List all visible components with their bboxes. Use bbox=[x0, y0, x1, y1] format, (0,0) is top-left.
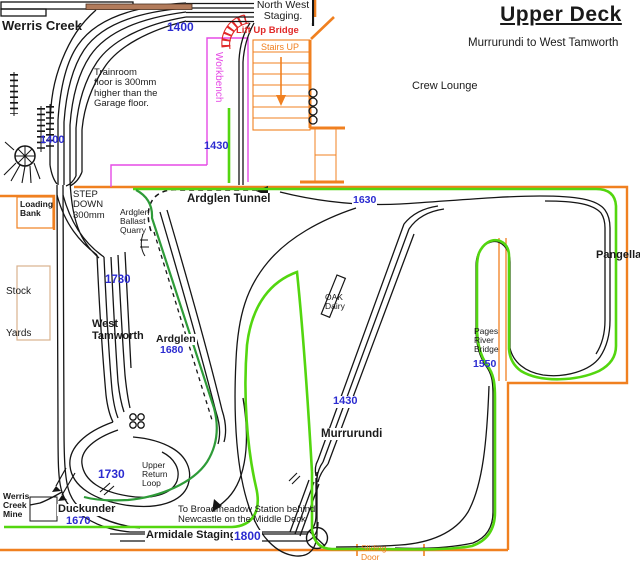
wall-stairs-diagonal bbox=[311, 0, 334, 39]
murrurundi-label: Murrurundi bbox=[320, 428, 383, 440]
pangella-descent-track bbox=[336, 386, 489, 547]
ardglen-loop-tracks bbox=[160, 210, 226, 444]
west-tamworth-label: West Tamworth bbox=[92, 319, 144, 343]
loading-bank-label: Loading Bank bbox=[20, 200, 53, 218]
mainline-1630-pangella bbox=[280, 192, 610, 548]
duckunder-arrow-head-1 bbox=[52, 486, 61, 492]
elevation-1430-murrurundi: 1430 bbox=[332, 396, 358, 408]
turntable-spokes bbox=[15, 146, 35, 166]
elevation-1730-loop: 1730 bbox=[97, 468, 126, 481]
roundhouse-tracks bbox=[4, 142, 40, 183]
ardglen-quarry-label: Ardglen Ballast Quarry bbox=[120, 208, 149, 236]
loop-dot-3 bbox=[130, 422, 136, 428]
upper-return-loop-label: Upper Return Loop bbox=[141, 461, 169, 489]
upper-deck-trackplan: Upper Deck Murrurundi to West Tamworth C… bbox=[0, 0, 640, 563]
fan-merge bbox=[50, 165, 82, 186]
trackwork bbox=[1, 0, 610, 556]
stairs-lower-landing bbox=[315, 128, 336, 181]
crew-lounge-label: Crew Lounge bbox=[412, 81, 477, 93]
duckunder-arrow-head-2 bbox=[58, 495, 67, 501]
upper-return-loop-outer bbox=[70, 422, 190, 506]
loop-dot-1 bbox=[130, 414, 136, 420]
murrurundi-yard-tracks bbox=[318, 206, 444, 464]
werris-creek-mine-label: Werris Creek Mine bbox=[3, 492, 29, 520]
staging-box-short bbox=[1, 9, 46, 16]
workbench-label: Workbench bbox=[212, 52, 223, 102]
green-ardglen-branch bbox=[84, 190, 217, 500]
ardglen-tunnel-label: Ardglen Tunnel bbox=[186, 193, 271, 205]
step-down-note: STEP DOWN 300mm bbox=[73, 190, 105, 221]
pangella-second-track bbox=[545, 201, 605, 354]
elevation-1550: 1550 bbox=[473, 359, 496, 370]
elevation-1680: 1680 bbox=[159, 345, 184, 356]
grade-hatch-1 bbox=[289, 473, 300, 484]
quarry-siding bbox=[140, 234, 149, 256]
oak-dairy-label: OAK Dairy bbox=[325, 293, 345, 311]
elevation-1400-staging: 1400 bbox=[167, 21, 194, 34]
branch-green-route bbox=[84, 190, 217, 500]
left-main-tracks bbox=[57, 185, 64, 428]
loop-dot-2 bbox=[138, 414, 144, 420]
broadmeadow-arrow-shaft bbox=[216, 398, 246, 508]
workbench-edge bbox=[111, 38, 248, 187]
lift-up-bridge-label: Lift Up Bridge bbox=[236, 26, 299, 36]
elevation-1670: 1670 bbox=[66, 516, 90, 528]
pages-river-bridge-piers bbox=[499, 238, 506, 381]
pages-river-bridge-label: Pages River Bridge bbox=[474, 327, 499, 355]
elevation-1800: 1800 bbox=[233, 530, 262, 543]
duckunder-tracks bbox=[30, 425, 94, 514]
broadmeadow-note: To Broadmeadow Station behind Newcastle … bbox=[178, 505, 315, 526]
stock-yards-label: Stock Yards bbox=[6, 281, 31, 344]
workbench-outline bbox=[111, 38, 248, 187]
platform-bar bbox=[86, 4, 192, 10]
stairs-arrow-head bbox=[276, 95, 286, 106]
werris-creek-label: Werris Creek bbox=[2, 19, 82, 33]
elevation-1430-workbench: 1430 bbox=[204, 141, 228, 153]
elevation-1400-werris: 1400 bbox=[40, 135, 64, 147]
trainroom-note: Trainroom floor is 300mm higher than the… bbox=[94, 68, 157, 109]
pangella-label: Pangella bbox=[596, 250, 640, 262]
sliding-door-label: Sliding Door bbox=[361, 544, 387, 562]
stairs-up-label: Stairs UP bbox=[261, 43, 299, 53]
elevation-1730-west-tamworth: 1730 bbox=[105, 274, 131, 286]
page-subtitle: Murrurundi to West Tamworth bbox=[468, 37, 618, 49]
armidale-staging-label: Armidale Staging bbox=[145, 530, 237, 542]
werris-creek-mine-building bbox=[30, 497, 57, 521]
north-west-staging-label: North West Staging. bbox=[254, 0, 312, 23]
ardglen-dashed-track bbox=[154, 232, 212, 420]
green-mainline-east bbox=[133, 189, 616, 549]
loop-dot-4 bbox=[138, 422, 144, 428]
page-title: Upper Deck bbox=[495, 4, 627, 27]
workbench-track bbox=[239, 23, 254, 185]
elevation-1630: 1630 bbox=[352, 195, 377, 206]
